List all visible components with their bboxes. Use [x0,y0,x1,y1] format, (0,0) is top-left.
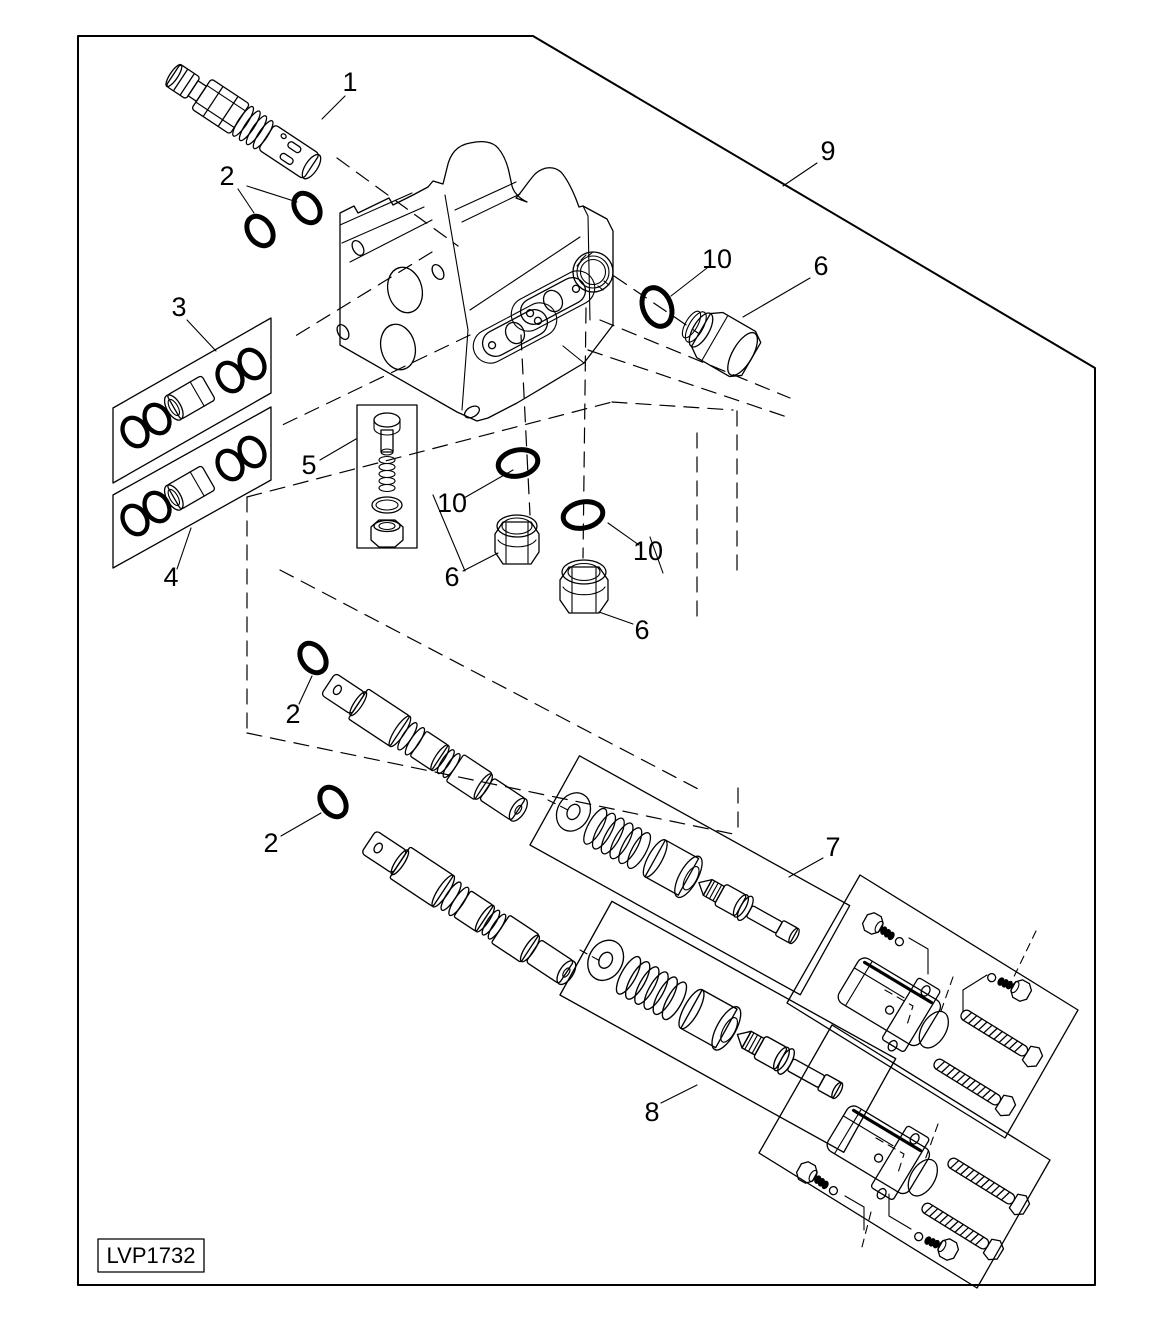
leader-line [783,163,817,186]
callout-7: 7 [825,832,840,862]
o-ring-2b [288,188,325,227]
o-ring-2a [241,211,278,250]
callout-8: 8 [644,1097,659,1127]
callout-2: 2 [219,161,234,191]
cap-screw [929,1053,1018,1120]
leader-line [299,676,312,704]
callout-labels: 1 2 3 4 5 6 6 6 7 8 9 10 10 10 2 2 [163,67,840,1127]
leader-line [789,858,823,877]
callout-6a: 6 [444,562,459,592]
diagram-canvas: LVP1732 [0,0,1175,1324]
callout-3: 3 [171,292,186,322]
detent-kit-box-lower [759,1025,1050,1288]
port-hole [376,321,420,374]
kit4-box [113,407,271,568]
callout-4: 4 [163,562,178,592]
callout-10a: 10 [437,488,467,518]
leader-line [322,96,345,119]
work-port-boss [467,297,562,369]
port-hole [383,264,427,317]
spring-kit-7 [530,756,850,995]
kit4-axis [276,335,470,428]
leader-line [281,813,321,836]
leader-line [187,320,216,351]
o-ring-2c [294,638,331,677]
callout-1: 1 [342,67,357,97]
spring-kit-8 [560,901,896,1152]
control-spool-1 [318,669,533,828]
plug-axis-b [583,308,586,558]
plug-6b [560,560,608,613]
callout-2c: 2 [285,699,300,729]
bore-axis-c3 [588,350,790,418]
bolt-hole [335,323,352,342]
o-ring-10a [496,446,541,480]
leader-line [463,553,498,571]
bore-axis-c2 [600,320,790,398]
valve-body [335,142,613,421]
callout-10b: 10 [633,536,663,566]
o-ring-2d [314,782,351,821]
callout-5: 5 [301,450,316,480]
detent-housing-1 [827,946,963,1070]
leader-line [320,439,356,460]
seal-kit-4 [113,407,271,568]
cap-screw [956,1004,1045,1071]
leader-line [177,528,191,569]
cap-screw [943,1152,1032,1219]
o-ring-10c [637,283,678,331]
kit3-box [113,318,271,483]
plug-6a [495,515,539,564]
figure-code-text: LVP1732 [107,1243,196,1268]
detent-box-1 [787,875,1078,1138]
cap-screw [917,1197,1006,1264]
diagram-border [78,36,1095,1285]
callout-6b: 6 [634,615,649,645]
bolt-hole [430,263,447,282]
detent-housing-2 [816,1094,952,1218]
exploded-parts-diagram: LVP1732 [0,0,1175,1324]
bolt-hole [463,404,482,421]
callout-6c: 6 [813,251,828,281]
callout-10c: 10 [702,244,732,274]
leader-line [238,189,254,213]
part-1-relief-valve [161,58,327,185]
callout-2d: 2 [263,828,278,858]
leader-line [743,278,810,317]
kit3-axis [292,252,432,338]
check-valve-kit-5 [357,405,417,548]
leader-line [599,612,633,624]
figure-code-box: LVP1732 [98,1239,204,1272]
seal-kit-3 [113,318,271,483]
leader-line [464,470,513,498]
detent-box-2 [759,1025,1050,1288]
assembly-axis-part1 [337,158,458,246]
work-port-boss [505,265,600,337]
control-spool-2 [358,826,582,992]
bracket-line [247,186,297,202]
callout-9: 9 [820,136,835,166]
detent-kit-box-upper [787,875,1078,1138]
dashed-construction-lines [247,402,738,962]
leader-line [661,1085,697,1103]
